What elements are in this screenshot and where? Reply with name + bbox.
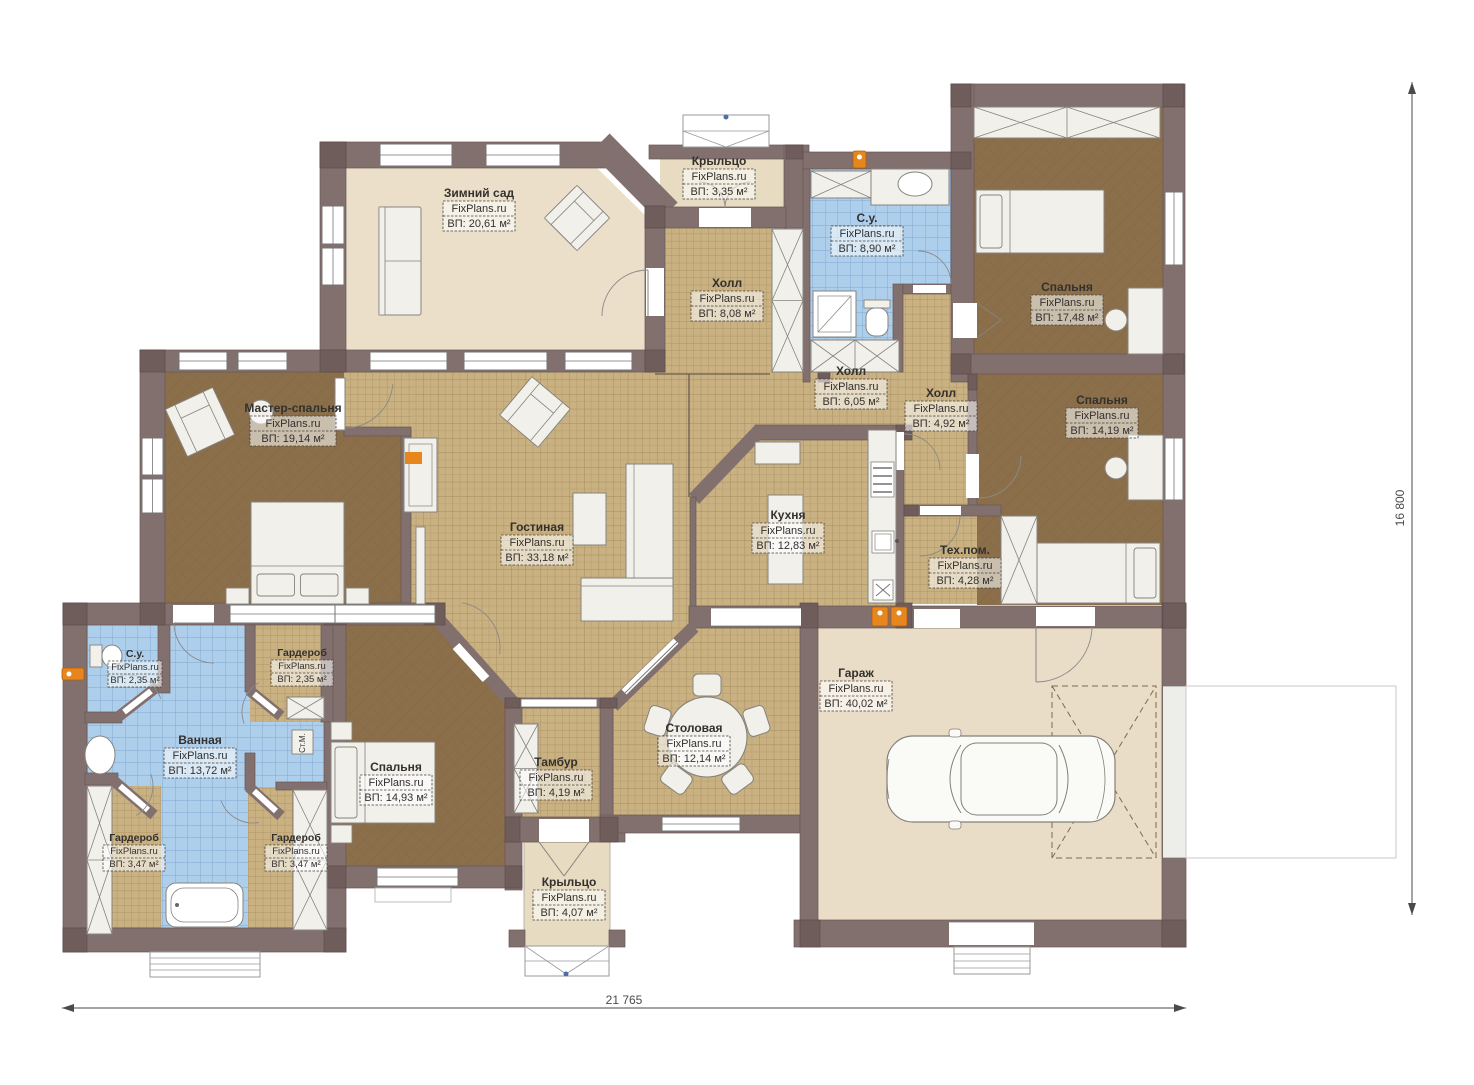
svg-text:FixPlans.ru: FixPlans.ru (265, 418, 320, 430)
svg-text:Ванная: Ванная (178, 733, 222, 747)
svg-text:Гардероб: Гардероб (109, 832, 159, 844)
svg-text:ВП: 14,19 м²: ВП: 14,19 м² (1070, 425, 1134, 437)
svg-text:FixPlans.ru: FixPlans.ru (760, 525, 815, 537)
svg-text:ВП: 12,83 м²: ВП: 12,83 м² (756, 540, 820, 552)
svg-text:Тамбур: Тамбур (534, 755, 578, 769)
svg-text:Гардероб: Гардероб (277, 647, 327, 659)
svg-text:FixPlans.ru: FixPlans.ru (1039, 297, 1094, 309)
svg-text:Гараж: Гараж (838, 666, 874, 680)
svg-text:FixPlans.ru: FixPlans.ru (823, 381, 878, 393)
svg-text:FixPlans.ru: FixPlans.ru (172, 750, 227, 762)
svg-text:FixPlans.ru: FixPlans.ru (666, 738, 721, 750)
svg-text:FixPlans.ru: FixPlans.ru (272, 846, 320, 857)
svg-text:Спальня: Спальня (1076, 393, 1128, 407)
svg-text:С.у.: С.у. (126, 648, 144, 660)
svg-text:ВП: 12,14 м²: ВП: 12,14 м² (662, 753, 726, 765)
svg-text:FixPlans.ru: FixPlans.ru (541, 892, 596, 904)
svg-text:ВП: 2,35 м²: ВП: 2,35 м² (110, 675, 159, 686)
svg-text:Столовая: Столовая (665, 721, 722, 735)
svg-text:ВП: 40,02 м²: ВП: 40,02 м² (824, 698, 888, 710)
svg-text:16 800: 16 800 (1393, 489, 1407, 526)
svg-text:21 765: 21 765 (606, 993, 643, 1007)
svg-text:ВП: 17,48 м²: ВП: 17,48 м² (1035, 312, 1099, 324)
svg-text:ВП: 8,90 м²: ВП: 8,90 м² (838, 243, 895, 255)
svg-text:FixPlans.ru: FixPlans.ru (828, 683, 883, 695)
svg-text:ВП: 4,07 м²: ВП: 4,07 м² (540, 907, 597, 919)
svg-text:FixPlans.ru: FixPlans.ru (1074, 410, 1129, 422)
svg-text:Крыльцо: Крыльцо (692, 154, 747, 168)
svg-text:Гардероб: Гардероб (271, 832, 321, 844)
svg-text:Холл: Холл (836, 364, 866, 378)
svg-text:FixPlans.ru: FixPlans.ru (278, 661, 326, 672)
svg-text:ВП: 3,35 м²: ВП: 3,35 м² (690, 186, 747, 198)
svg-text:Кухня: Кухня (770, 508, 805, 522)
svg-text:ВП: 8,08 м²: ВП: 8,08 м² (698, 308, 755, 320)
svg-text:FixPlans.ru: FixPlans.ru (368, 777, 423, 789)
svg-text:Крыльцо: Крыльцо (542, 875, 597, 889)
svg-text:Мастер-спальня: Мастер-спальня (244, 401, 341, 415)
svg-text:FixPlans.ru: FixPlans.ru (509, 537, 564, 549)
svg-text:ВП: 4,92 м²: ВП: 4,92 м² (912, 418, 969, 430)
svg-text:ВП: 4,19 м²: ВП: 4,19 м² (527, 787, 584, 799)
svg-text:FixPlans.ru: FixPlans.ru (699, 293, 754, 305)
svg-text:Холл: Холл (926, 386, 956, 400)
svg-text:ВП: 2,35 м²: ВП: 2,35 м² (277, 674, 326, 685)
svg-text:FixPlans.ru: FixPlans.ru (528, 772, 583, 784)
svg-text:ВП: 14,93 м²: ВП: 14,93 м² (364, 792, 428, 804)
svg-text:Холл: Холл (712, 276, 742, 290)
svg-text:Тех.пом.: Тех.пом. (940, 543, 990, 557)
svg-text:Гостиная: Гостиная (510, 520, 564, 534)
svg-text:С.у.: С.у. (857, 211, 878, 225)
svg-text:FixPlans.ru: FixPlans.ru (913, 403, 968, 415)
svg-text:Спальня: Спальня (1041, 280, 1093, 294)
svg-text:FixPlans.ru: FixPlans.ru (111, 662, 159, 673)
svg-text:ВП: 3,47 м²: ВП: 3,47 м² (271, 859, 320, 870)
svg-text:ВП: 13,72 м²: ВП: 13,72 м² (168, 765, 232, 777)
svg-text:ВП: 4,28 м²: ВП: 4,28 м² (936, 575, 993, 587)
svg-text:FixPlans.ru: FixPlans.ru (110, 846, 158, 857)
svg-text:ВП: 3,47 м²: ВП: 3,47 м² (109, 859, 158, 870)
svg-text:ВП: 20,61 м²: ВП: 20,61 м² (447, 218, 511, 230)
svg-text:ВП: 19,14 м²: ВП: 19,14 м² (261, 433, 325, 445)
svg-text:FixPlans.ru: FixPlans.ru (451, 203, 506, 215)
svg-text:Спальня: Спальня (370, 760, 422, 774)
svg-text:ВП: 6,05 м²: ВП: 6,05 м² (822, 396, 879, 408)
svg-text:ВП: 33,18 м²: ВП: 33,18 м² (505, 552, 569, 564)
svg-text:FixPlans.ru: FixPlans.ru (839, 228, 894, 240)
svg-text:Ст.М.: Ст.М. (298, 733, 307, 753)
svg-text:FixPlans.ru: FixPlans.ru (691, 171, 746, 183)
svg-text:FixPlans.ru: FixPlans.ru (937, 560, 992, 572)
svg-text:Зимний сад: Зимний сад (444, 186, 515, 200)
